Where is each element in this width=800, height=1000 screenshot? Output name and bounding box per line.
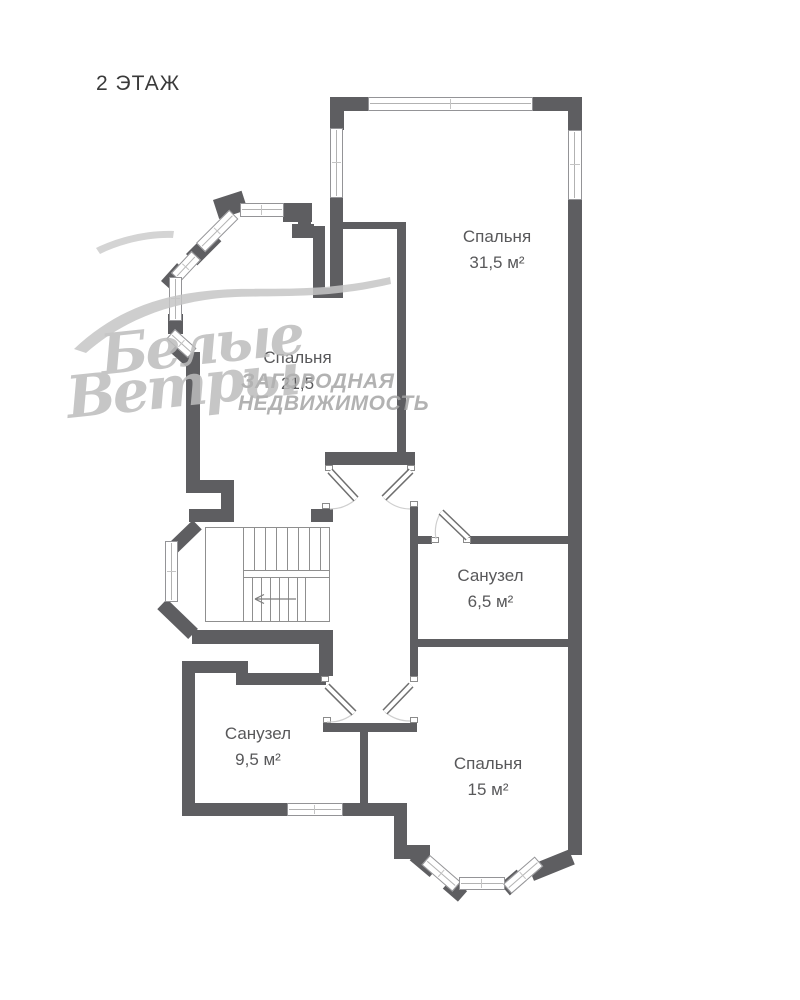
- niche-wall: [313, 288, 343, 298]
- door-jamb: [410, 676, 418, 682]
- exterior-wall-bottom: [182, 803, 287, 816]
- door-jamb: [410, 717, 418, 723]
- room-area: 31,5 м²: [469, 253, 524, 272]
- room-area: 9,5 м²: [235, 750, 281, 769]
- room-name: Спальня: [463, 227, 531, 246]
- room-name: Санузел: [225, 724, 291, 743]
- bay-corner: [298, 214, 311, 230]
- interior-wall: [360, 732, 368, 810]
- room-label-bathroom-6: Санузел 6,5 м²: [418, 563, 563, 614]
- exterior-wall-left: [186, 352, 200, 492]
- door-jamb: [321, 676, 329, 682]
- room-name: Спальня: [263, 348, 331, 367]
- window-left: [330, 128, 343, 198]
- door-jamb: [322, 503, 330, 509]
- bath-wall: [415, 536, 432, 544]
- room-name: Санузел: [457, 566, 523, 585]
- stair-direction-arrow: [255, 595, 296, 604]
- staircase: [206, 528, 330, 622]
- exterior-wall-right: [568, 97, 582, 132]
- window-bottom: [287, 803, 343, 816]
- exterior-wall-left: [330, 97, 344, 130]
- window-right: [568, 130, 582, 200]
- vestibule-wall: [319, 630, 333, 676]
- room-area: 21,5: [281, 374, 314, 393]
- room-label-bathroom-9: Санузел 9,5 м²: [188, 721, 328, 772]
- stair-window: [165, 541, 178, 602]
- interior-wall: [410, 639, 570, 647]
- bath-wall: [236, 673, 326, 685]
- hall-wall: [311, 509, 333, 522]
- window-top: [368, 97, 533, 111]
- stair-wall: [189, 509, 234, 522]
- room-label-bedroom-31: Спальня 31,5 м²: [417, 224, 577, 275]
- bay-window: [196, 210, 238, 252]
- hall-wall: [325, 452, 415, 465]
- door-jamb: [431, 537, 439, 543]
- floor-title: 2 ЭТАЖ: [96, 72, 180, 96]
- interior-wall-bedroom-divider: [397, 222, 406, 458]
- bath-wall: [470, 536, 570, 544]
- room-area: 15 м²: [468, 780, 509, 799]
- room-label-bedroom-21: Спальня 21,5: [230, 345, 365, 396]
- door-jamb: [407, 465, 415, 471]
- bay-window: [169, 277, 182, 321]
- room-label-bedroom-15: Спальня 15 м²: [418, 751, 558, 802]
- exterior-wall-left: [330, 196, 343, 298]
- bay-window: [240, 203, 284, 217]
- vestibule-wall: [323, 723, 417, 732]
- hall-east-wall: [410, 507, 418, 676]
- door-jamb: [325, 465, 333, 471]
- floor-plan: 2 ЭТАЖ: [0, 0, 800, 1000]
- room-name: Спальня: [454, 754, 522, 773]
- door-jamb: [463, 537, 471, 543]
- stair-wall: [192, 630, 332, 644]
- bay-window: [459, 877, 505, 890]
- interior-wall: [343, 222, 399, 229]
- door-jamb: [410, 501, 418, 507]
- room-area: 6,5 м²: [468, 592, 514, 611]
- exterior-wall-right: [568, 198, 582, 855]
